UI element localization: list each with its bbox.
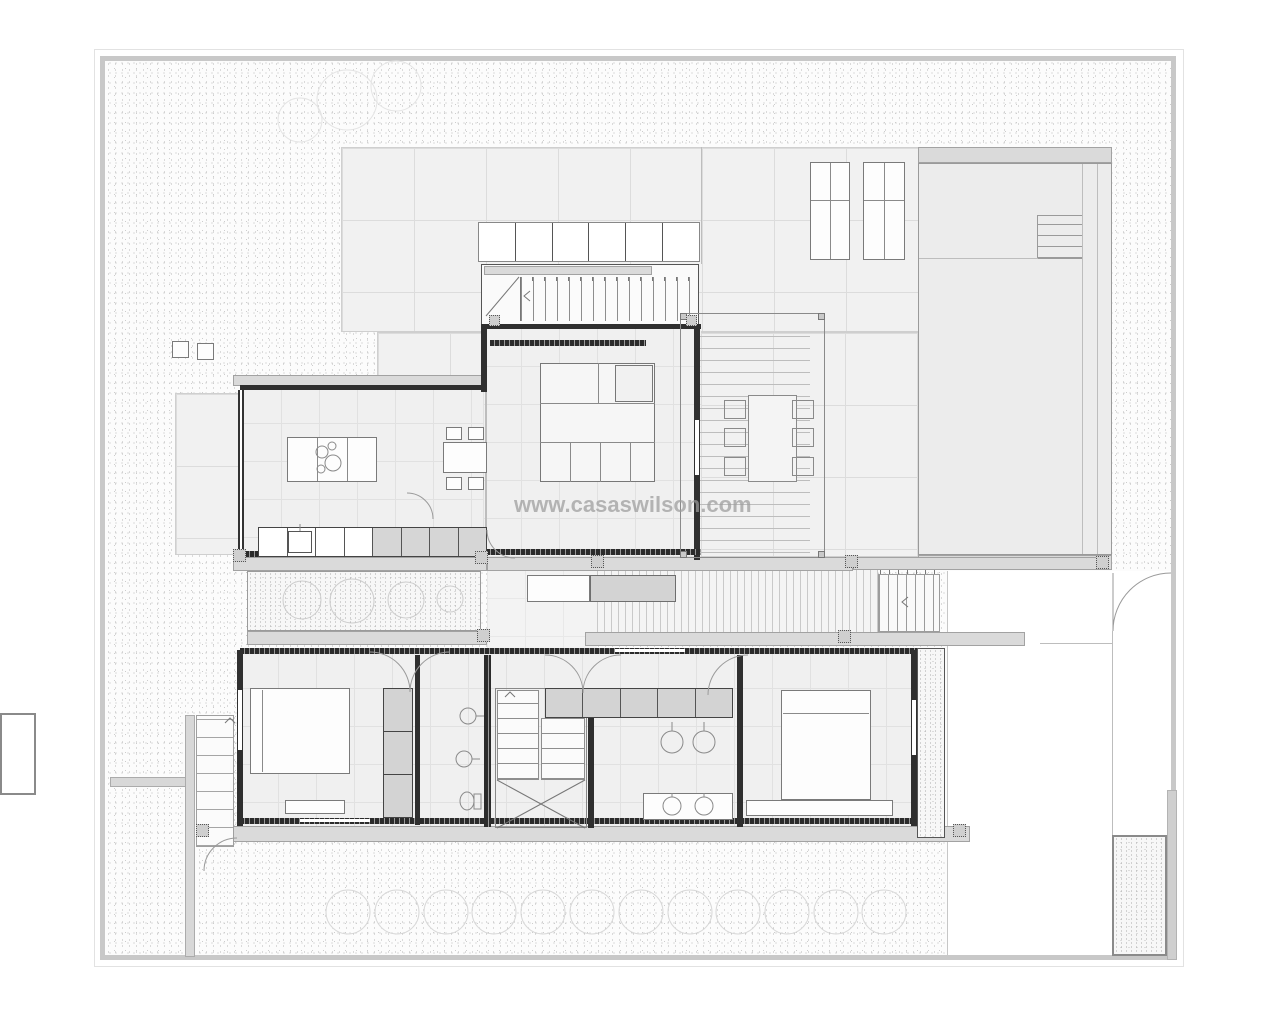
watermark: www.casaswilson.com [514, 492, 752, 518]
stair-marks [225, 277, 908, 828]
shrub-row [326, 890, 906, 934]
hob-and-sink [300, 442, 341, 531]
door-arcs [204, 493, 1171, 871]
bath-fixtures [456, 708, 715, 815]
planter-shrubs [283, 579, 463, 623]
garden-trees [278, 61, 421, 142]
floor-plan-sheet: www.casaswilson.com [0, 0, 1280, 1024]
